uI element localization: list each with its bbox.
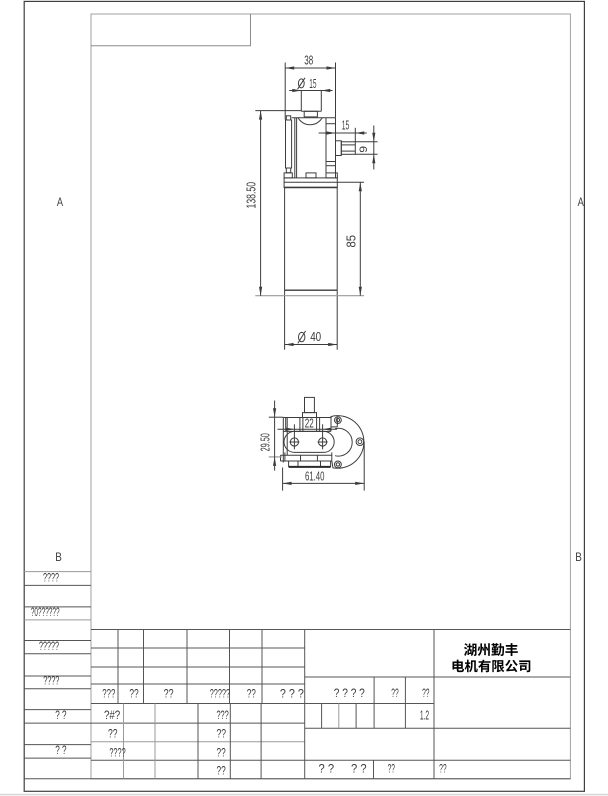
svg-text:A: A [57,195,63,209]
svg-text:? ? ? ?: ? ? ? ? [334,687,366,700]
svg-text:????: ???? [109,746,126,759]
svg-text:? ?: ? ? [55,744,67,757]
svg-text:??: ?? [247,687,257,700]
svg-text:1.2: 1.2 [420,708,429,722]
svg-text:??: ?? [388,763,396,776]
svg-text:???: ??? [216,709,229,722]
svg-text:B: B [575,550,582,564]
svg-text:??: ?? [129,687,139,700]
svg-text:????: ???? [43,571,59,584]
svg-text:??: ?? [422,687,430,700]
svg-text:40: 40 [310,330,321,344]
svg-text:???: ??? [102,687,115,700]
svg-text:15: 15 [309,77,316,91]
svg-text:A: A [578,195,584,209]
svg-text:?????: ????? [210,687,231,700]
svg-text:? ? ?: ? ? ? [280,687,305,700]
svg-text:38: 38 [304,53,313,67]
svg-text:61.40: 61.40 [305,470,325,484]
svg-text:??: ?? [439,763,447,776]
svg-text:9: 9 [358,146,370,153]
svg-text:??: ?? [108,728,118,741]
svg-text:15: 15 [342,119,350,133]
svg-text:??: ?? [217,746,227,759]
svg-text:? ?: ? ? [55,709,67,722]
svg-text:??: ?? [217,764,227,777]
svg-text:?0??????: ?0?????? [31,606,60,619]
svg-text:??: ?? [391,687,399,700]
svg-text:22: 22 [305,416,314,430]
svg-text:B: B [55,550,62,564]
svg-text:? ?: ? ? [319,763,335,776]
svg-text:??: ?? [217,728,227,741]
svg-text:?#?: ?#? [104,709,121,722]
svg-text:85: 85 [345,235,359,248]
svg-text:??: ?? [164,687,174,700]
svg-text:?????: ????? [39,640,59,653]
svg-text:29.50: 29.50 [259,433,273,451]
svg-text:? ?: ? ? [351,763,367,776]
svg-text:????: ???? [43,675,59,688]
svg-text:138.50: 138.50 [244,182,258,209]
